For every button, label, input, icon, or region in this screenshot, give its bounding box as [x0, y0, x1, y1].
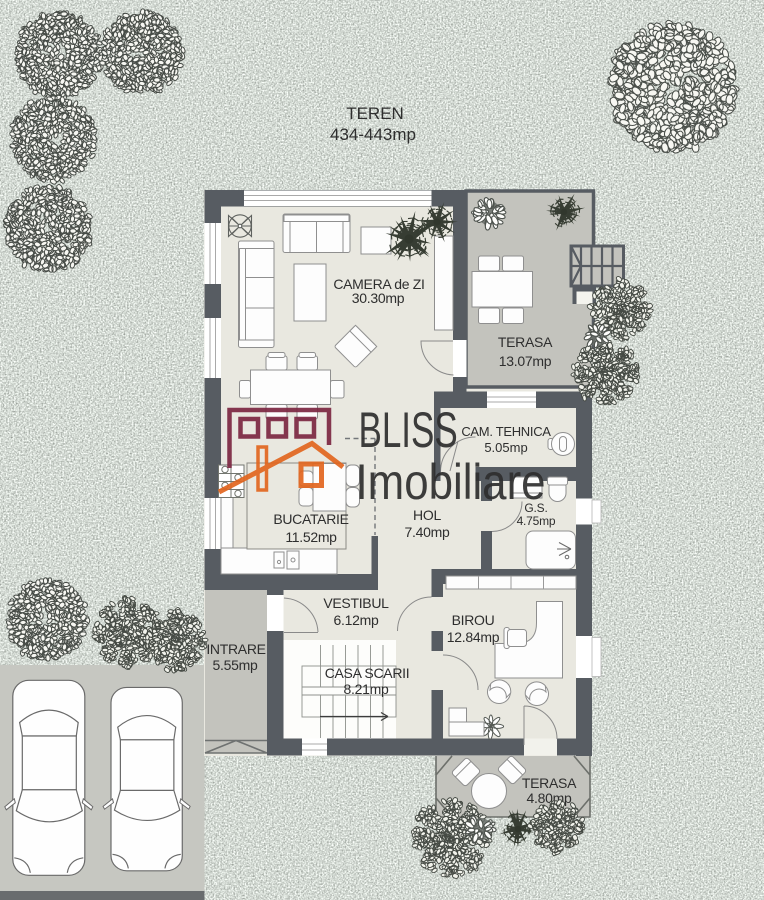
svg-text:INTRARE: INTRARE — [206, 641, 265, 657]
svg-text:TERASA: TERASA — [522, 775, 577, 791]
svg-text:TEREN: TEREN — [346, 104, 404, 123]
svg-text:11.52mp: 11.52mp — [285, 529, 337, 545]
svg-text:12.84mp: 12.84mp — [447, 629, 500, 645]
svg-text:BIROU: BIROU — [452, 612, 495, 628]
svg-text:7.40mp: 7.40mp — [405, 524, 450, 540]
svg-text:5.55mp: 5.55mp — [213, 657, 258, 673]
svg-text:8.21mp: 8.21mp — [344, 681, 389, 697]
svg-text:30.30mp: 30.30mp — [352, 290, 405, 306]
svg-text:6.12mp: 6.12mp — [334, 612, 379, 628]
svg-text:BLISS: BLISS — [359, 403, 458, 459]
svg-text:VESTIBUL: VESTIBUL — [323, 595, 389, 611]
svg-text:13.07mp: 13.07mp — [499, 353, 552, 369]
svg-text:Imobiliare: Imobiliare — [356, 453, 546, 509]
svg-text:BUCATARIE: BUCATARIE — [273, 511, 348, 527]
svg-text:4.80mp: 4.80mp — [527, 790, 572, 806]
svg-text:CAM. TEHNICA: CAM. TEHNICA — [461, 424, 551, 439]
svg-text:434-443mp: 434-443mp — [330, 125, 416, 144]
svg-text:4.75mp: 4.75mp — [517, 514, 556, 528]
svg-text:TERASA: TERASA — [498, 334, 553, 350]
svg-text:CASA SCARII: CASA SCARII — [325, 665, 410, 681]
